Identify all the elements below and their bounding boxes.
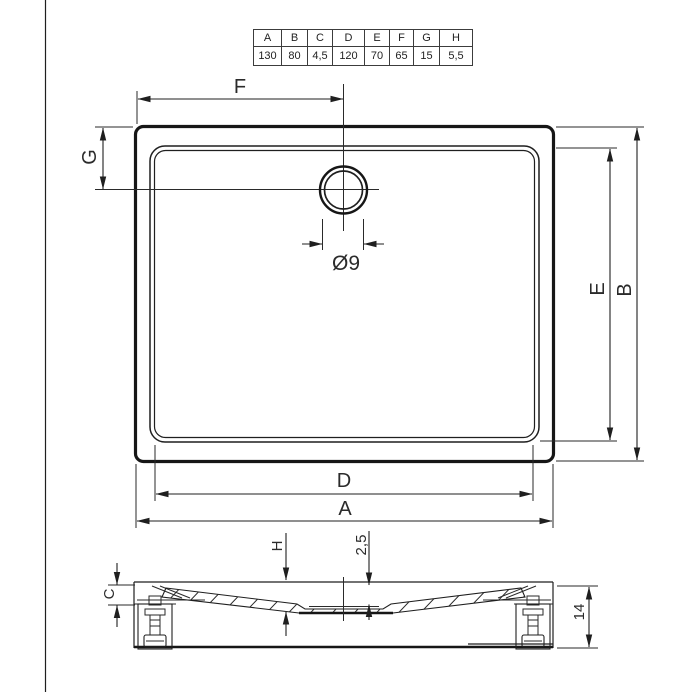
table-value-cell: 5,5 — [440, 47, 473, 66]
dim-label-f: F — [234, 76, 246, 98]
table-header-cell: D — [333, 30, 365, 47]
dim-label-a: A — [338, 498, 352, 520]
table-value-cell: 65 — [390, 47, 414, 66]
dim-total-height: 14 — [557, 586, 598, 648]
table-value-cell: 15 — [414, 47, 440, 66]
dim-label-b: B — [614, 283, 636, 296]
dim-label-g: G — [79, 149, 101, 165]
table-header-cell: G — [414, 30, 440, 47]
dimension-table: A B C D E F G H 130 80 4,5 120 70 65 15 … — [253, 29, 473, 66]
dim-label-drain-diameter: Ø9 — [332, 252, 360, 275]
plan-view: F G Ø9 E — [79, 76, 644, 528]
dim-label-total-height: 14 — [571, 604, 588, 621]
table-header-cell: F — [390, 30, 414, 47]
dim-c: C — [101, 563, 135, 627]
table-header-cell: H — [440, 30, 473, 47]
adjustable-foot-left — [138, 596, 172, 649]
dim-h: H — [269, 533, 286, 636]
table-header-cell: E — [365, 30, 390, 47]
table-value-cell: 4,5 — [308, 47, 333, 66]
table-value-cell: 130 — [254, 47, 282, 66]
section-slab — [140, 577, 560, 630]
drawing-canvas: F G Ø9 E — [0, 0, 691, 692]
table-value-row: 130 80 4,5 120 70 65 15 5,5 — [254, 47, 473, 66]
table-header-cell: C — [308, 30, 333, 47]
dim-g: G — [79, 127, 133, 189]
shower-tray-technical-drawing: F G Ø9 E — [0, 0, 691, 692]
dim-f: F — [137, 76, 343, 124]
dim-e: E — [540, 148, 617, 441]
table-value-cell: 80 — [282, 47, 308, 66]
table-value-cell: 120 — [333, 47, 365, 66]
section-view: C H 2,5 14 — [101, 531, 598, 649]
drain — [95, 84, 379, 231]
tray-outline — [136, 127, 554, 462]
dim-label-c: C — [101, 588, 118, 599]
dim-label-e: E — [587, 282, 609, 295]
dim-label-d: D — [337, 470, 351, 492]
adjustable-foot-right — [516, 596, 550, 649]
table-header-cell: A — [254, 30, 282, 47]
dim-label-h: H — [269, 541, 286, 552]
table-header-row: A B C D E F G H — [254, 30, 473, 47]
table-header-cell: B — [282, 30, 308, 47]
table-value-cell: 70 — [365, 47, 390, 66]
dim-label-recess: 2,5 — [353, 535, 370, 556]
dim-d: D — [155, 445, 533, 501]
